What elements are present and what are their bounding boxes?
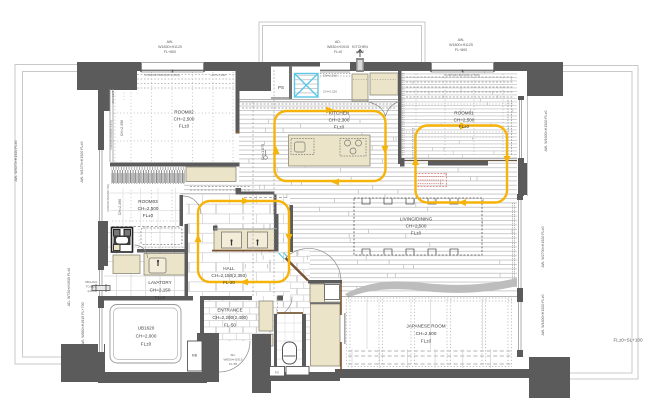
svg-text:CH=2,150(2,350): CH=2,150(2,350)	[211, 273, 247, 278]
svg-text:CH=2,150: CH=2,150	[323, 90, 337, 94]
svg-text:FL-20: FL-20	[223, 280, 235, 285]
svg-text:AW- W3075×H1920 FL±0: AW- W3075×H1920 FL±0	[14, 140, 18, 181]
svg-text:PS: PS	[275, 371, 279, 375]
svg-text:AD- W730×H1930 FL±0: AD- W730×H1930 FL±0	[67, 268, 71, 306]
svg-text:CH=1,975: CH=1,975	[111, 90, 115, 103]
svg-text:FL±0: FL±0	[179, 124, 190, 129]
svg-text:AW- W1800×H1920 FL±0: AW- W1800×H1920 FL±0	[541, 294, 545, 335]
svg-text:CH=2,500: CH=2,500	[416, 331, 437, 336]
svg-text:AW- W1600×H1920 FL±0: AW- W1600×H1920 FL±0	[544, 110, 548, 151]
svg-text:CH=2,500: CH=2,500	[138, 206, 159, 211]
svg-text:CH=2,300: CH=2,300	[329, 118, 350, 123]
svg-text:AD-: AD-	[335, 40, 342, 44]
svg-text:FL±0: FL±0	[421, 339, 432, 344]
svg-text:FL±0: FL±0	[411, 231, 422, 236]
svg-text:CH=2,500: CH=2,500	[174, 117, 195, 122]
svg-text:CH=1,875: CH=1,875	[261, 144, 265, 160]
svg-text:ROOM02: ROOM02	[174, 110, 194, 115]
svg-text:ROOM01: ROOM01	[454, 111, 474, 116]
svg-text:CH=2,390: CH=2,390	[120, 120, 124, 136]
svg-text:ENTRANCE: ENTRANCE	[217, 308, 242, 313]
svg-text:CURTAIN BOX(W=1,370): CURTAIN BOX(W=1,370)	[109, 120, 113, 150]
svg-text:PS: PS	[278, 85, 284, 90]
svg-text:FL-55: FL-55	[229, 362, 237, 366]
svg-text:FL±0=SL+100: FL±0=SL+100	[613, 338, 643, 343]
svg-text:MB: MB	[192, 354, 198, 358]
svg-text:TOILET: TOILET	[86, 285, 97, 289]
svg-text:HALL: HALL	[223, 266, 235, 271]
svg-text:CH=1,910: CH=1,910	[323, 74, 337, 78]
svg-text:CURTAIN BOX(W=2,700): CURTAIN BOX(W=2,700)	[444, 73, 479, 77]
svg-text:W850×H1915: W850×H1915	[223, 358, 242, 362]
svg-text:CH=2,390: CH=2,390	[118, 199, 122, 215]
svg-text:CH=2,200(2,400): CH=2,200(2,400)	[212, 315, 248, 320]
svg-text:LIVING/DINING: LIVING/DINING	[400, 217, 433, 222]
svg-text:FL±0: FL±0	[155, 295, 166, 300]
svg-text:KITCHEN: KITCHEN	[329, 111, 349, 116]
svg-text:FL+800: FL+800	[164, 50, 176, 54]
svg-text:UB1620: UB1620	[138, 326, 155, 331]
svg-text:FL+800: FL+800	[455, 48, 467, 52]
svg-text:W1830×H1120: W1830×H1120	[158, 45, 182, 49]
svg-text:UB/LAVA: UB/LAVA	[85, 280, 99, 284]
svg-text:CH=2,500: CH=2,500	[454, 118, 475, 123]
svg-text:FL±0: FL±0	[141, 342, 152, 347]
svg-text:ROOM03: ROOM03	[138, 199, 158, 204]
svg-text:KITCHEN: KITCHEN	[352, 45, 368, 49]
svg-text:AW-: AW-	[458, 38, 466, 42]
svg-text:FL-50: FL-50	[224, 323, 236, 328]
svg-text:FL±0: FL±0	[334, 125, 345, 130]
svg-text:AW-: AW-	[167, 40, 175, 44]
svg-text:φ100: φ100	[87, 289, 94, 293]
svg-text:W1800×H1125: W1800×H1125	[449, 43, 473, 47]
svg-text:CH=2,500: CH=2,500	[406, 224, 427, 229]
svg-text:FL±0: FL±0	[334, 50, 342, 54]
svg-text:CURTAIN BOX(W=1,800): CURTAIN BOX(W=1,800)	[144, 73, 179, 77]
svg-text:CH=2,000: CH=2,000	[136, 334, 157, 339]
svg-text:CH=2,150: CH=2,150	[150, 288, 171, 293]
svg-text:JAPANESE ROOM: JAPANESE ROOM	[406, 324, 445, 329]
svg-text:AW- W2700×H1920 FL±0: AW- W2700×H1920 FL±0	[541, 226, 545, 267]
svg-text:W830×H1915: W830×H1915	[327, 45, 349, 49]
svg-text:AW- W1370×H1920 FL±0: AW- W1370×H1920 FL±0	[80, 141, 84, 182]
svg-text:LAVATORY: LAVATORY	[148, 280, 171, 285]
svg-text:AW- W860×H1915 FL+700: AW- W860×H1915 FL+700	[81, 302, 85, 345]
svg-text:φ150: φ150	[356, 50, 364, 54]
svg-text:SD-: SD-	[230, 353, 235, 357]
svg-text:FL±0: FL±0	[143, 213, 154, 218]
svg-text:CURTAIN BOX(W=730): CURTAIN BOX(W=730)	[106, 184, 110, 212]
svg-text:+CH+1,910: +CH+1,910	[210, 73, 226, 77]
svg-text:FL±0: FL±0	[459, 124, 470, 129]
